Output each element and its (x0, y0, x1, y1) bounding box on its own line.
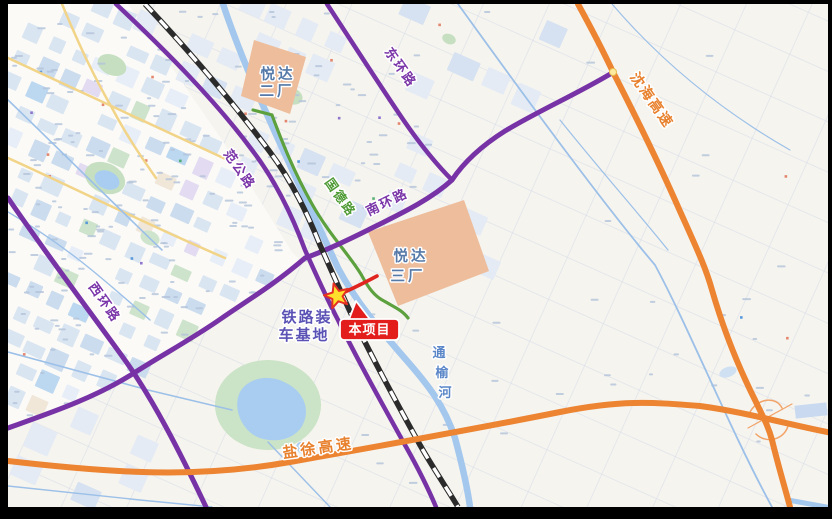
label-rail-base-line1: 铁路装 (281, 308, 332, 326)
callout-label: 本项目 (348, 322, 390, 338)
interchange-dot (610, 69, 617, 76)
label-yueda-plant3-line2: 三厂 (391, 268, 426, 285)
label-rail-base-line2: 车基地 (278, 326, 329, 344)
map-window: 东环路 南环路 西环路 范公路 国德路 沈海高速 盐徐高速 通 榆 河 悦达 二… (0, 0, 832, 519)
label-yueda-plant2-line2: 二厂 (260, 83, 295, 100)
label-tongyu-char3: 河 (438, 385, 451, 401)
label-yueda-plant2-line1: 悦达 (261, 65, 296, 83)
label-tongyu-char2: 榆 (435, 365, 449, 381)
label-yueda-plant3-line1: 悦达 (394, 247, 429, 265)
label-tongyu-char1: 通 (432, 345, 445, 361)
map-canvas[interactable]: 东环路 南环路 西环路 范公路 国德路 沈海高速 盐徐高速 通 榆 河 悦达 二… (0, 0, 832, 519)
